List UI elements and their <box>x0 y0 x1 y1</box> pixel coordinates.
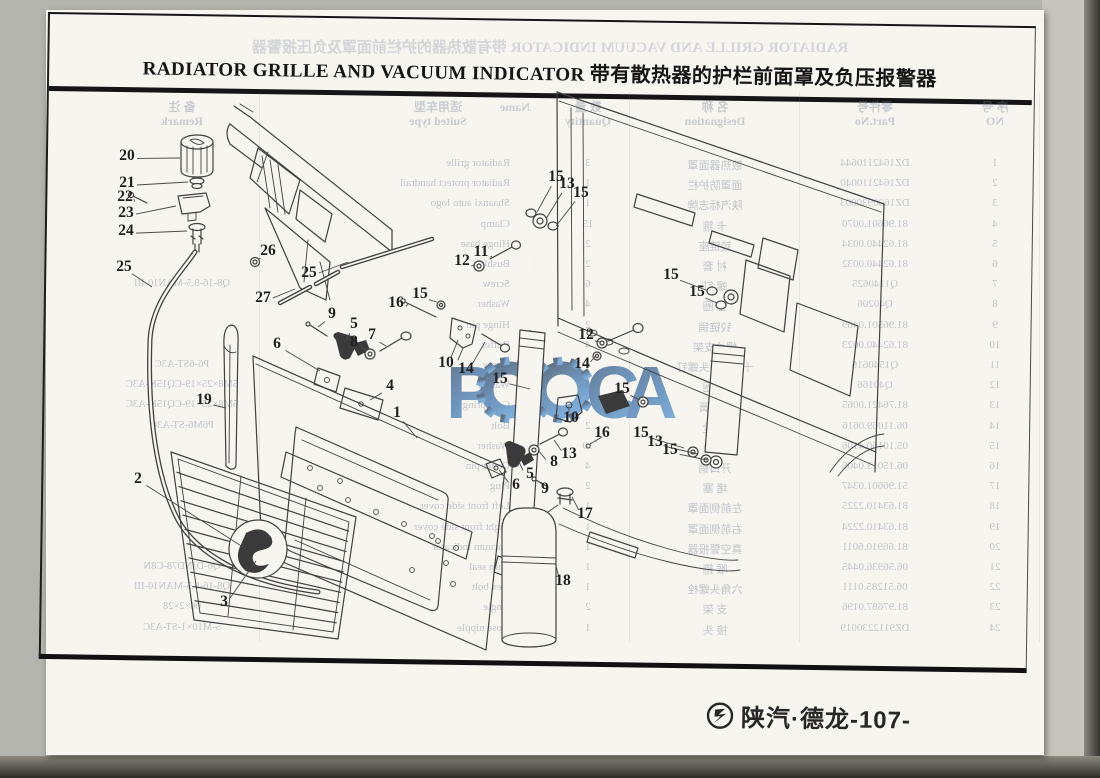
callout-15: 15 <box>492 370 508 387</box>
callout-5: 5 <box>350 315 358 332</box>
callout-7: 7 <box>368 326 376 343</box>
grille-slat <box>195 601 336 623</box>
corner-trim-strip <box>224 325 238 469</box>
vacuum-cylinder <box>502 488 573 647</box>
callout-11: 11 <box>474 243 489 260</box>
callout-19: 19 <box>196 391 212 408</box>
vacuum-hose <box>150 239 432 592</box>
callout-4: 4 <box>386 377 394 394</box>
leader-line <box>556 201 575 226</box>
callout-15: 15 <box>412 285 428 302</box>
callout-18: 18 <box>555 572 571 589</box>
callout-8: 8 <box>550 453 558 470</box>
leader-line <box>537 186 551 212</box>
callout-15: 15 <box>689 283 705 300</box>
leader-line <box>213 405 226 408</box>
callout-13: 13 <box>647 433 663 450</box>
callout-13: 13 <box>561 445 577 462</box>
leader-line <box>490 256 492 257</box>
leader-line <box>380 342 386 346</box>
callout-6: 6 <box>273 335 281 352</box>
callout-15: 15 <box>663 266 679 283</box>
callout-16: 16 <box>594 424 610 441</box>
cab-panel-sketch <box>557 92 884 571</box>
leader-line <box>429 300 437 302</box>
leader-line <box>406 304 408 306</box>
callout-22: 22 <box>117 188 133 205</box>
callout-14: 14 <box>458 360 474 377</box>
leader-line <box>706 298 717 303</box>
callout-14: 14 <box>574 355 590 372</box>
vacuum-indicator-assembly <box>128 135 213 252</box>
leader-line <box>403 421 417 438</box>
screenshot-root: { "document": { "title_en": "RADIATOR GR… <box>0 0 1100 778</box>
callout-1: 1 <box>393 404 401 421</box>
callout-26: 26 <box>260 242 276 259</box>
callout-16: 16 <box>388 294 404 311</box>
callout-10: 10 <box>438 354 454 371</box>
callout-12: 12 <box>578 326 594 343</box>
callout-15: 15 <box>662 441 678 458</box>
leader-line <box>546 193 562 219</box>
callout-2: 2 <box>134 470 142 487</box>
callout-10: 10 <box>563 409 579 426</box>
callout-5: 5 <box>526 465 534 482</box>
callout-15: 15 <box>614 380 630 397</box>
callout-17: 17 <box>577 505 593 522</box>
callout-9: 9 <box>328 305 336 322</box>
callout-12: 12 <box>454 252 470 269</box>
callout-20: 20 <box>119 147 135 164</box>
callout-15: 15 <box>573 184 589 201</box>
callout-25: 25 <box>301 264 317 281</box>
callout-8: 8 <box>350 333 358 350</box>
parts-diagram: Р С А <box>0 0 1100 778</box>
leader-line <box>285 350 320 371</box>
callout-25: 25 <box>116 258 132 275</box>
leader-line <box>136 206 176 214</box>
callout-9: 9 <box>541 480 549 497</box>
leader-line <box>137 182 188 185</box>
leader-line <box>136 231 187 233</box>
callout-6: 6 <box>512 476 520 493</box>
callout-24: 24 <box>118 222 134 239</box>
watermark: Р С А <box>446 351 677 434</box>
callout-3: 3 <box>220 593 228 610</box>
callout-27: 27 <box>255 289 271 306</box>
mounting-band <box>281 452 472 559</box>
leader-line <box>318 322 325 327</box>
leader-line <box>538 450 546 459</box>
leader-line <box>132 274 152 287</box>
callout-23: 23 <box>118 204 134 221</box>
